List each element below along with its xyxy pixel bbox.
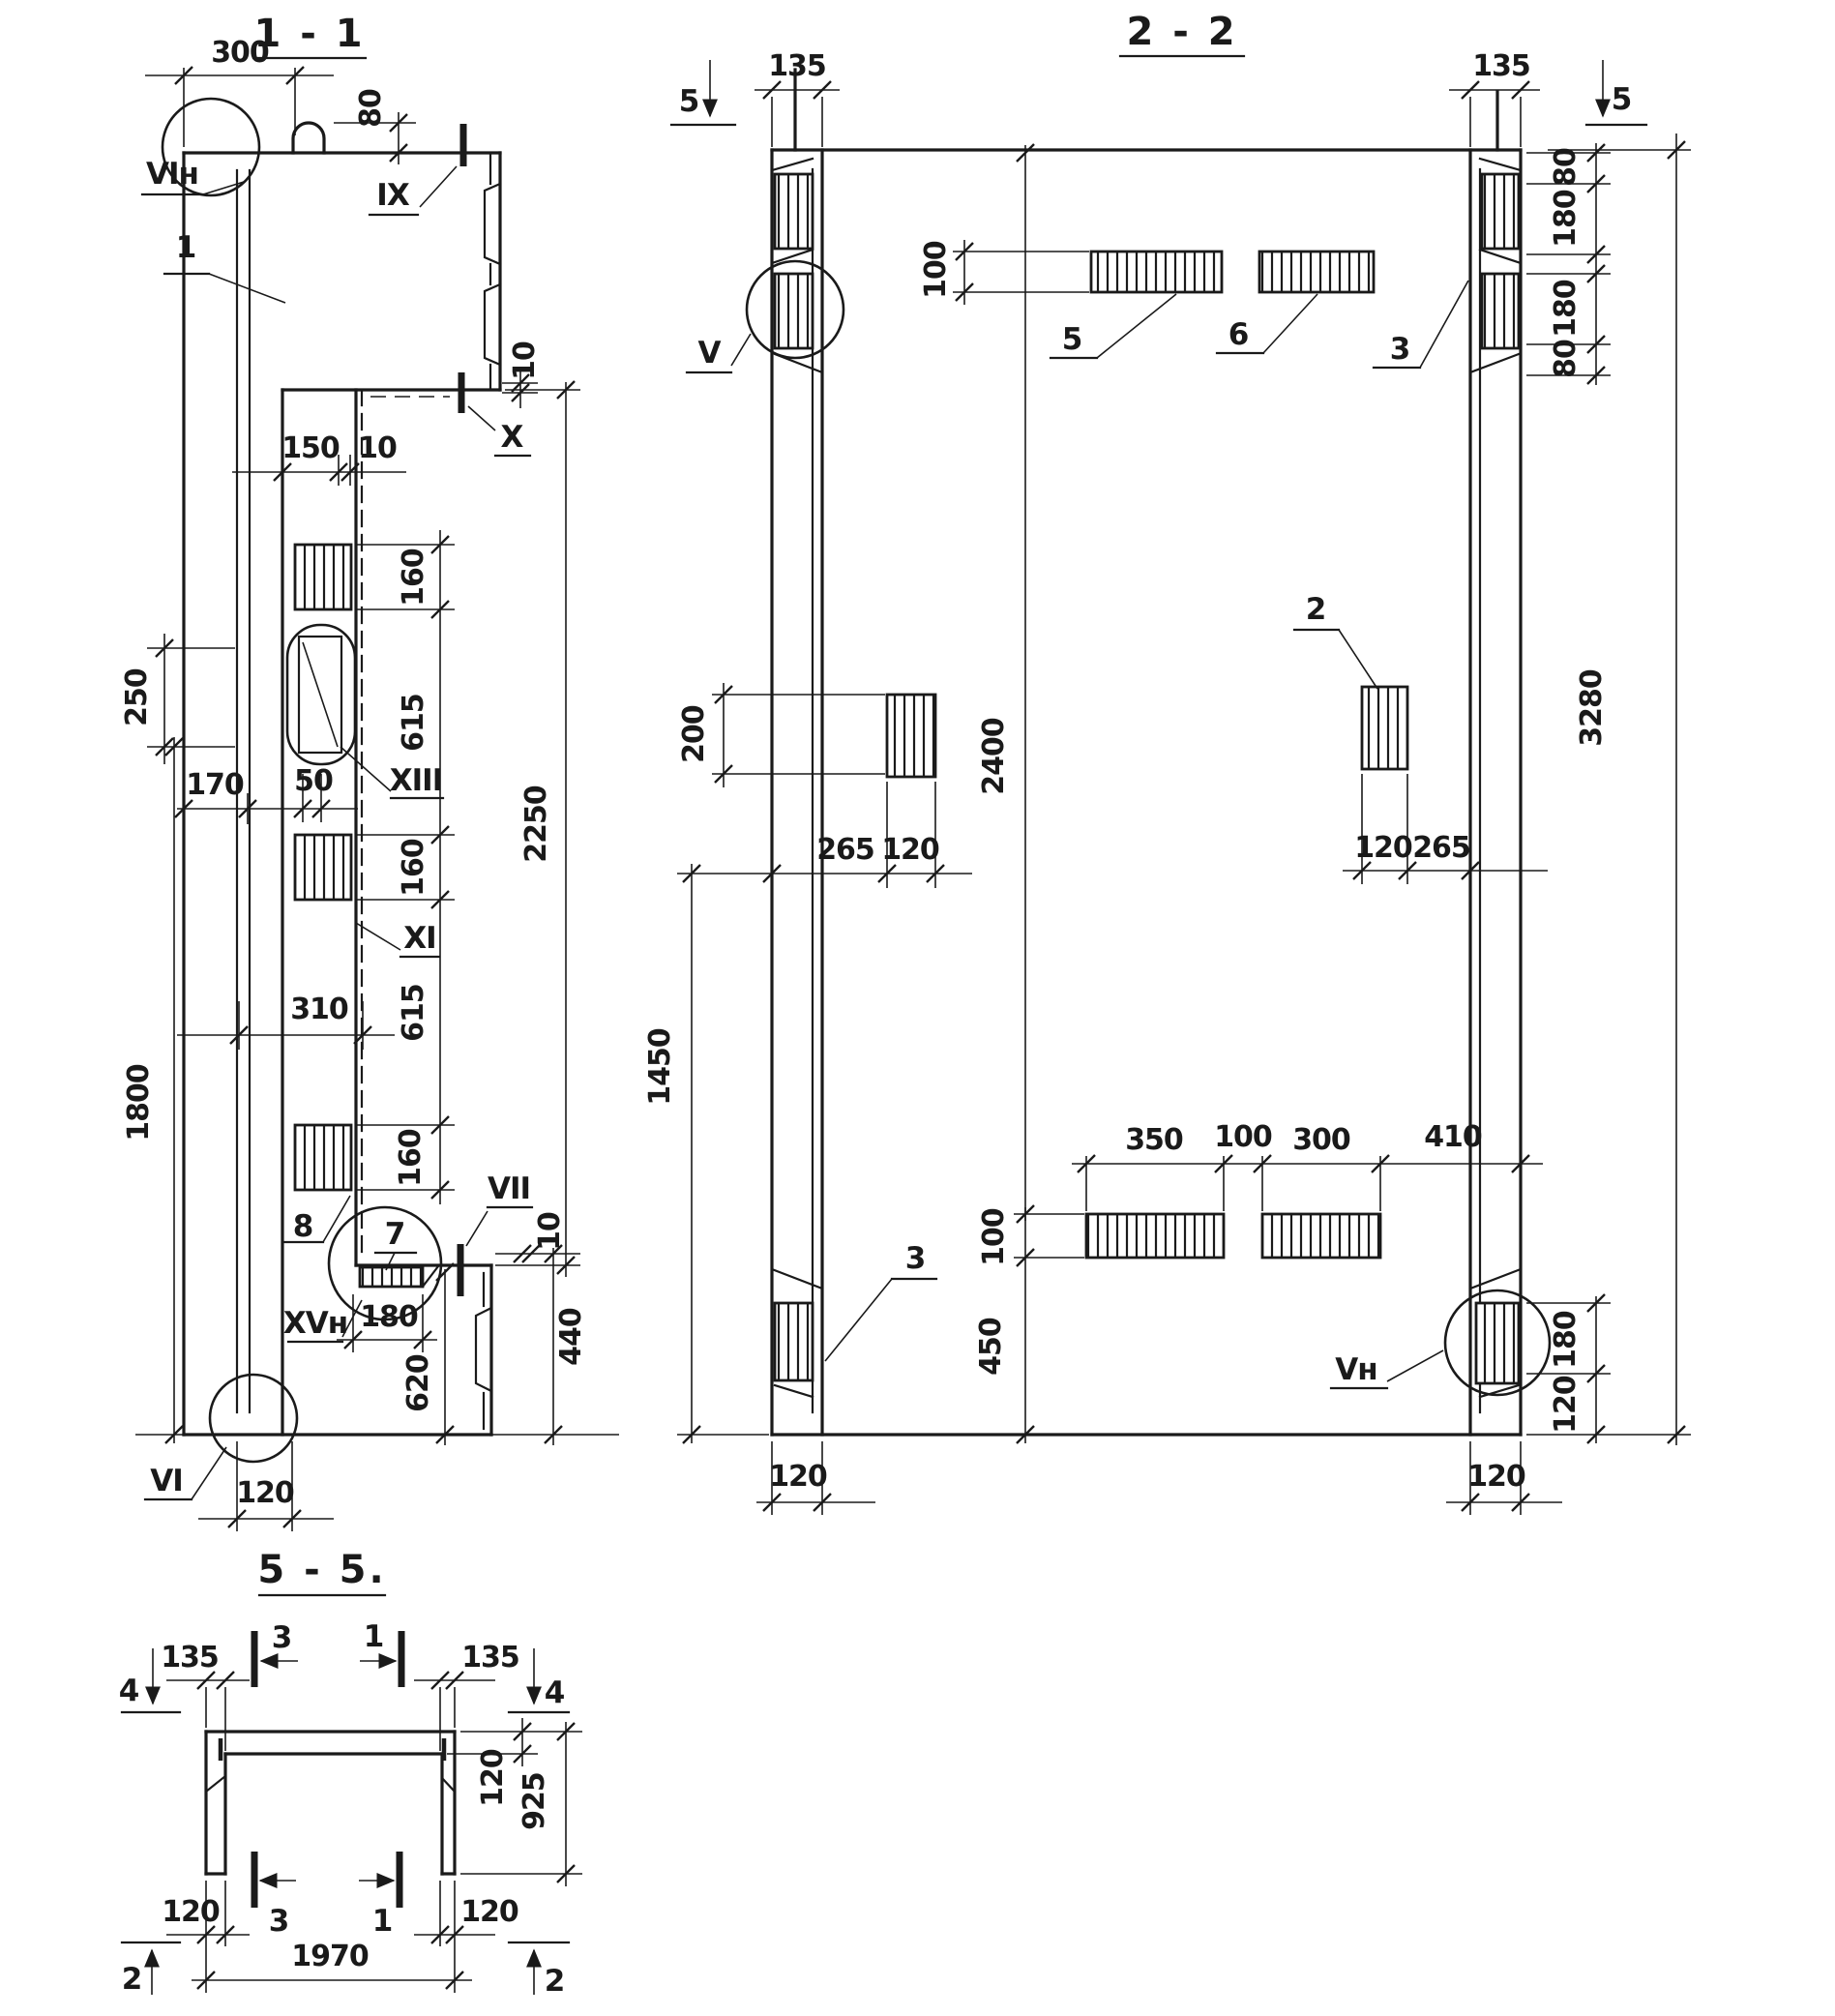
dim-160-1: 160 [397, 548, 430, 607]
label-x: X [501, 420, 524, 455]
dim-120-bottom: 120 [236, 1476, 294, 1510]
section-1-1-dimensions: 300 80 VIн 1 IX 10 X [120, 36, 619, 1531]
label-item-8: 8 [293, 1209, 313, 1244]
dim-1800: 1800 [122, 1064, 156, 1141]
edge-keyway [485, 284, 500, 365]
dim-300: 300 [211, 36, 269, 70]
embedded-plate [295, 545, 351, 609]
dim-620: 620 [401, 1354, 435, 1412]
dim-3280: 3280 [1575, 669, 1609, 747]
section-5-5-title: 5 - 5. [257, 1548, 386, 1592]
embedded-plate [1262, 1214, 1380, 1258]
dim-135-left: 135 [768, 49, 826, 83]
lifting-loop [293, 123, 324, 153]
dim-180-br: 180 [1549, 1311, 1583, 1369]
section-1-1-title: 1 - 1 [253, 12, 365, 56]
dim-80: 80 [354, 89, 388, 128]
dim-160-2: 160 [397, 839, 430, 897]
dim-1450: 1450 [643, 1028, 677, 1106]
section-2-2-title: 2 - 2 [1126, 10, 1237, 54]
dim-80-1: 80 [1549, 148, 1583, 187]
dim-2400: 2400 [977, 718, 1011, 795]
cut-mark-2-right: 2 [545, 1964, 565, 1999]
slot-opening-outline [287, 625, 355, 764]
dim-100-mid: 100 [1214, 1120, 1272, 1154]
label-item-3-bottom: 3 [905, 1241, 926, 1276]
embedded-plate [1086, 1214, 1224, 1258]
dim-120-top: 120 [476, 1749, 510, 1807]
label-vii: VII [488, 1171, 530, 1206]
section-5-5-geometry [206, 1732, 455, 1874]
dim-120-bottom-right: 120 [460, 1895, 518, 1929]
cut-mark-1-top: 1 [364, 1619, 384, 1654]
embedded-plate [295, 1125, 351, 1190]
label-item-7: 7 [385, 1217, 405, 1252]
dim-135-left: 135 [161, 1641, 219, 1675]
label-xiii: XIII [390, 763, 443, 798]
embedded-plate [887, 695, 935, 777]
dim-925: 925 [518, 1772, 551, 1830]
label-vn: Vн [1335, 1352, 1376, 1387]
label-ix: IX [376, 178, 410, 213]
dim-120-bottom-left: 120 [162, 1895, 220, 1929]
dim-120-col-left: 120 [769, 1460, 827, 1494]
dim-135-right: 135 [461, 1641, 519, 1675]
cut-mark-4-left: 4 [119, 1674, 139, 1708]
embedded-plate-6 [1259, 252, 1374, 292]
dim-180-1: 180 [1549, 190, 1583, 248]
cut-mark-4-right: 4 [545, 1675, 565, 1710]
embedded-plate-7 [360, 1267, 423, 1287]
label-item-1: 1 [176, 230, 196, 265]
blueprint-canvas: 1 - 1 [0, 0, 1835, 2016]
dim-310: 310 [290, 993, 348, 1026]
embedded-plate-5 [1091, 252, 1222, 292]
label-xi: XI [403, 921, 435, 956]
dim-250: 250 [120, 668, 154, 726]
dim-265-left: 265 [816, 833, 874, 867]
dim-120-left: 120 [881, 833, 939, 867]
label-v: V [698, 336, 722, 371]
label-item-6: 6 [1228, 317, 1249, 352]
dim-200: 200 [677, 705, 711, 763]
dim-2250: 2250 [519, 786, 553, 863]
cut-mark-3-bottom: 3 [269, 1904, 289, 1939]
dim-120-col-right: 120 [1467, 1460, 1525, 1494]
section-5-5: 5 - 5. 4 4 [119, 1548, 582, 1999]
dim-265-right: 265 [1412, 831, 1470, 865]
dim-80-2: 80 [1549, 340, 1583, 378]
edge-keyway [485, 184, 500, 264]
dim-410: 410 [1424, 1120, 1482, 1154]
cut-mark-1-bottom: 1 [372, 1904, 393, 1939]
scanned-drawing-page: 1 - 1 [0, 0, 1835, 2016]
edge-keyway [476, 1308, 491, 1391]
dim-10-mid: 10 [358, 431, 397, 465]
label-vi-bottom: VI [150, 1464, 183, 1498]
dim-160-3: 160 [394, 1129, 428, 1187]
embedded-plate [295, 835, 351, 900]
embedded-plate-2 [1362, 687, 1407, 769]
dim-1970: 1970 [291, 1940, 369, 1973]
dim-615-1: 615 [397, 694, 430, 752]
dim-180-2: 180 [1549, 280, 1583, 338]
label-vi-top: VIн [146, 157, 198, 192]
dim-10-top: 10 [508, 341, 542, 380]
cut-mark-3-top: 3 [272, 1620, 292, 1655]
dim-300: 300 [1292, 1123, 1350, 1157]
dim-50: 50 [294, 764, 333, 798]
dim-450: 450 [974, 1318, 1008, 1376]
cut-mark-5-left: 5 [679, 84, 699, 119]
section-5-5-dimensions: 4 4 135 135 3 1 [119, 1619, 582, 1999]
dim-350: 350 [1125, 1123, 1183, 1157]
label-item-5: 5 [1062, 322, 1082, 357]
section-1-1: 1 - 1 [120, 12, 619, 1531]
section-2-2-geometry [747, 70, 1550, 1435]
dim-180: 180 [360, 1300, 418, 1334]
dim-170: 170 [186, 768, 244, 802]
dim-615-2: 615 [397, 984, 430, 1042]
section-2-2: 2 - 2 [643, 10, 1691, 1515]
dim-135-right: 135 [1472, 49, 1530, 83]
dim-120-br: 120 [1549, 1376, 1583, 1434]
dim-100-bot: 100 [977, 1208, 1011, 1266]
cut-mark-5-right: 5 [1612, 82, 1632, 117]
cut-mark-2-left: 2 [122, 1962, 142, 1997]
label-xv: XVн [283, 1306, 347, 1341]
dim-150: 150 [281, 431, 340, 465]
label-item-2: 2 [1306, 592, 1326, 627]
dim-440: 440 [554, 1308, 588, 1366]
dim-100-top: 100 [919, 241, 953, 299]
label-item-3-top: 3 [1390, 332, 1410, 367]
dim-120-right: 120 [1354, 831, 1412, 865]
